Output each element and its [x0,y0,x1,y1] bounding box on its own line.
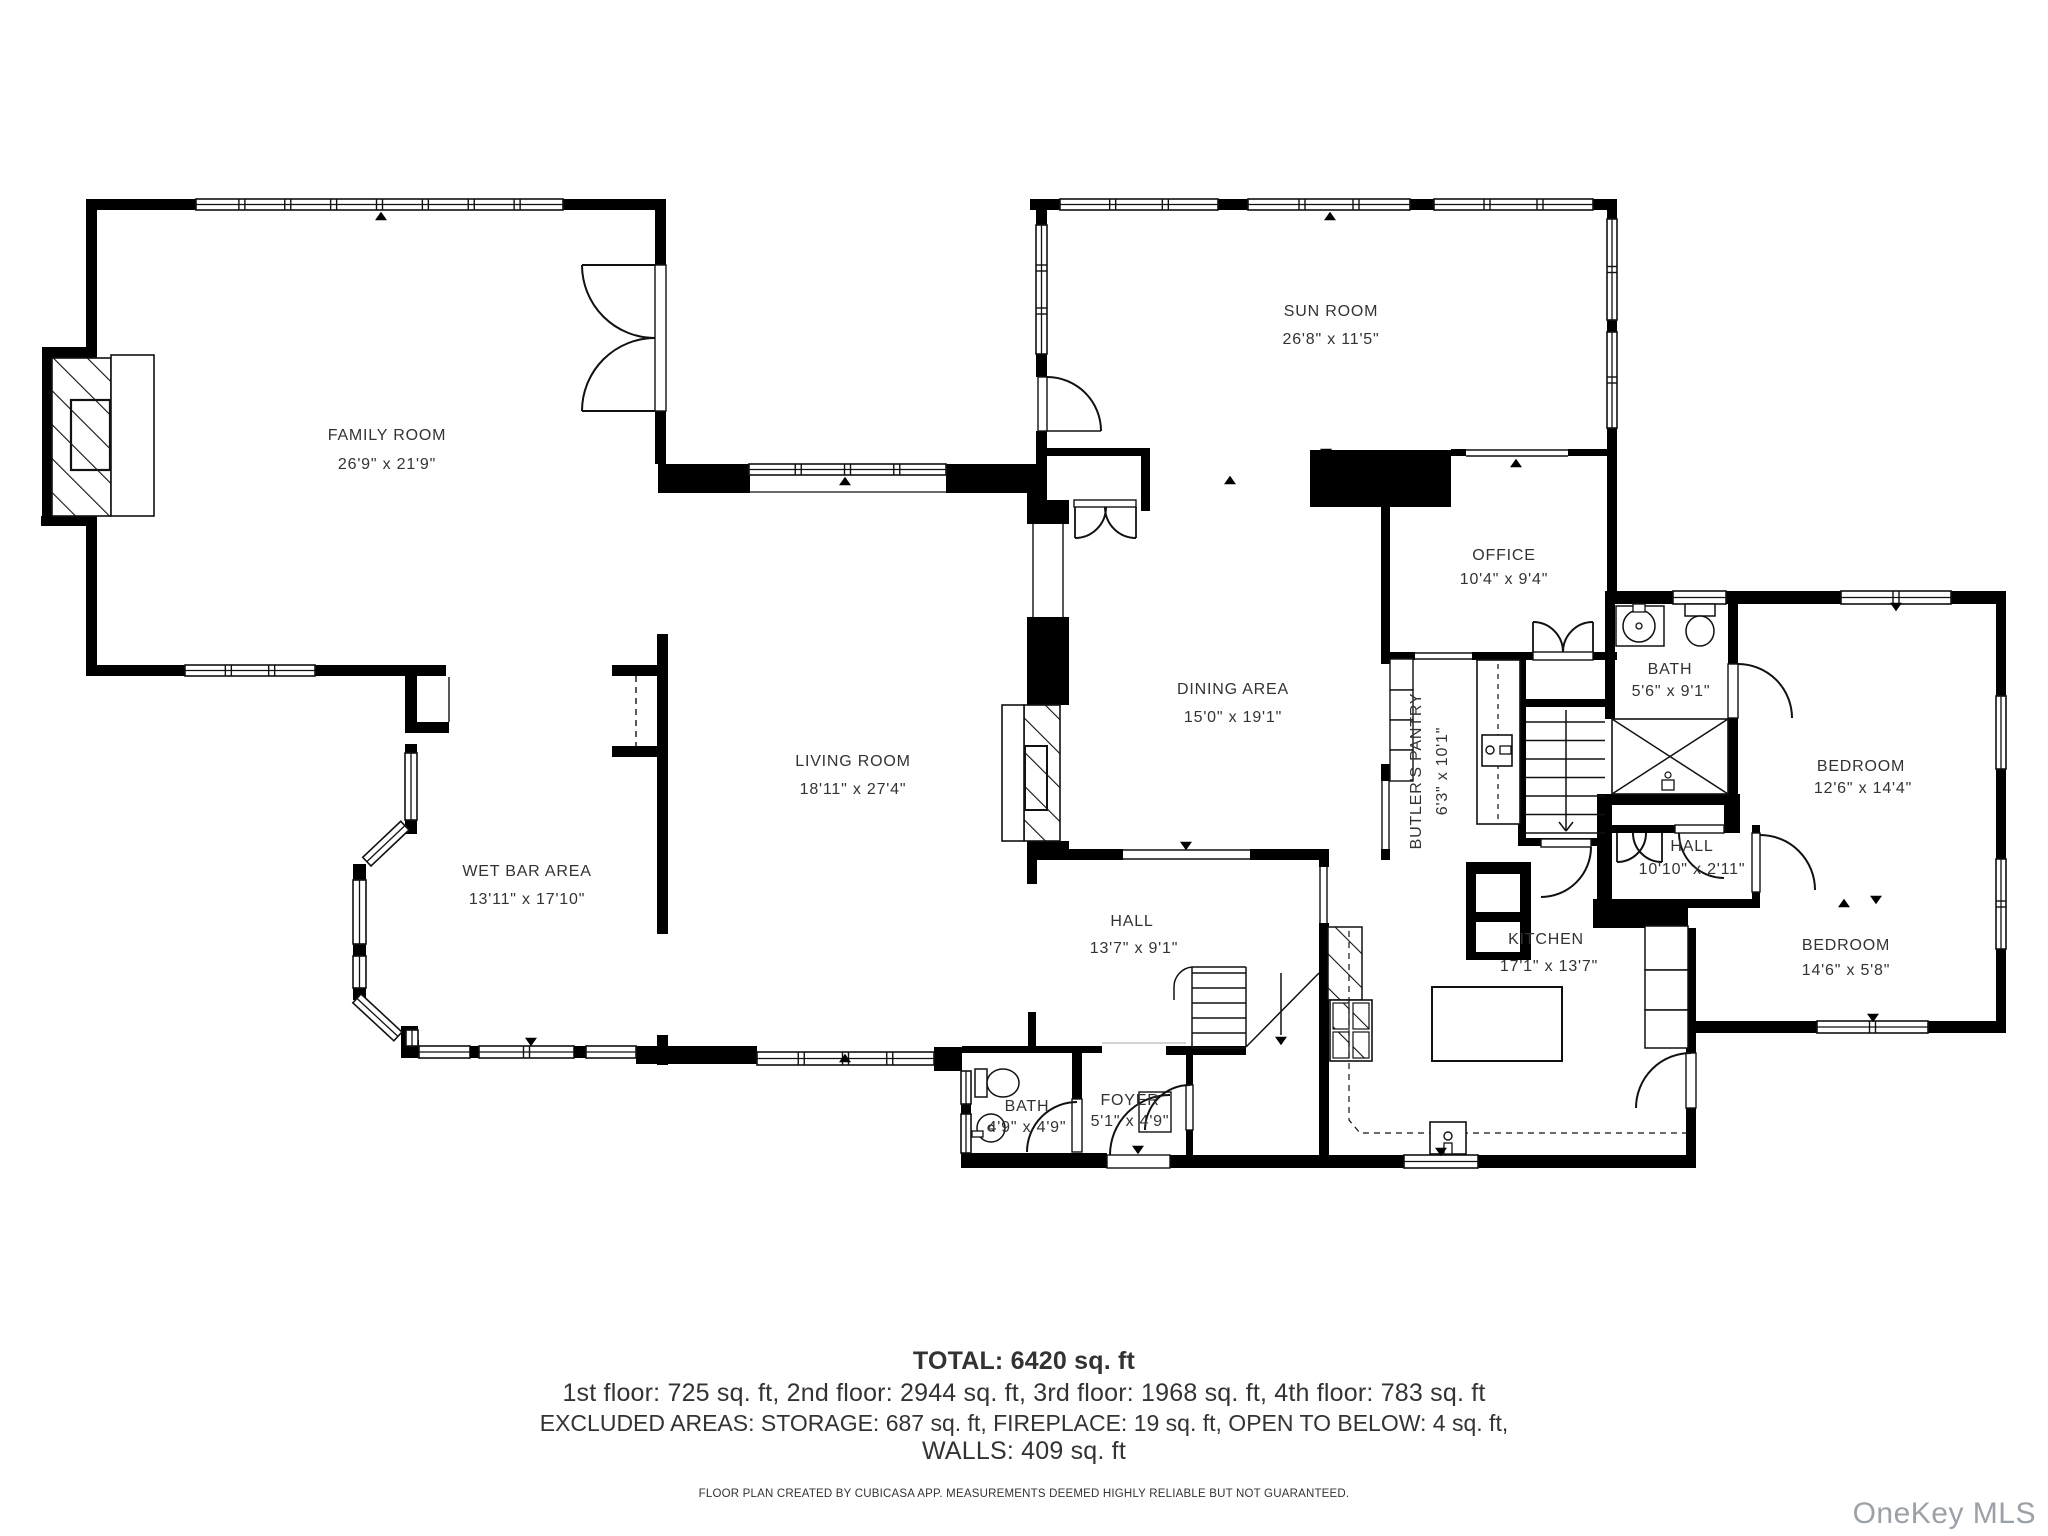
svg-text:EXCLUDED AREAS: STORAGE: 687 s: EXCLUDED AREAS: STORAGE: 687 sq. ft, FIR… [540,1410,1508,1436]
svg-text:BATH: BATH [1648,661,1693,678]
svg-text:KITCHEN: KITCHEN [1508,931,1584,948]
svg-text:6'3" x 10'1": 6'3" x 10'1" [1434,727,1451,815]
svg-text:SUN ROOM: SUN ROOM [1284,303,1378,320]
svg-text:13'11" x 17'10": 13'11" x 17'10" [469,891,585,908]
svg-text:5'6" x 9'1": 5'6" x 9'1" [1632,683,1711,700]
svg-text:BATH: BATH [1005,1098,1050,1115]
svg-text:18'11" x 27'4": 18'11" x 27'4" [800,781,907,798]
svg-text:15'0" x 19'1": 15'0" x 19'1" [1184,709,1282,726]
svg-text:FAMILY ROOM: FAMILY ROOM [328,427,446,444]
svg-text:13'7" x 9'1": 13'7" x 9'1" [1090,940,1178,957]
svg-text:14'6" x 5'8": 14'6" x 5'8" [1802,962,1890,979]
svg-text:26'8" x 11'5": 26'8" x 11'5" [1283,331,1380,348]
svg-text:DINING AREA: DINING AREA [1177,681,1289,698]
svg-text:5'1" x 4'9": 5'1" x 4'9" [1091,1113,1170,1130]
svg-text:1st floor: 725 sq. ft, 2nd flo: 1st floor: 725 sq. ft, 2nd floor: 2944 s… [562,1379,1485,1407]
svg-text:10'4" x 9'4": 10'4" x 9'4" [1460,571,1548,588]
svg-text:FOYER: FOYER [1100,1092,1159,1109]
svg-text:FLOOR PLAN CREATED BY CUBICASA: FLOOR PLAN CREATED BY CUBICASA APP. MEAS… [699,1488,1350,1500]
svg-text:BUTLER'S PANTRY: BUTLER'S PANTRY [1408,693,1425,850]
svg-text:10'10" x 2'11": 10'10" x 2'11" [1639,861,1746,878]
svg-text:BEDROOM: BEDROOM [1802,937,1890,954]
svg-text:OFFICE: OFFICE [1472,547,1535,564]
svg-text:TOTAL: 6420 sq. ft: TOTAL: 6420 sq. ft [913,1347,1136,1375]
svg-text:WALLS: 409 sq. ft: WALLS: 409 sq. ft [922,1437,1126,1465]
svg-text:OneKey MLS: OneKey MLS [1853,1497,2036,1530]
svg-text:BEDROOM: BEDROOM [1817,758,1905,775]
svg-text:17'1" x 13'7": 17'1" x 13'7" [1500,958,1598,975]
svg-text:26'9" x 21'9": 26'9" x 21'9" [338,456,436,473]
svg-text:LIVING ROOM: LIVING ROOM [795,753,910,770]
svg-text:HALL: HALL [1110,913,1153,930]
svg-text:HALL: HALL [1670,838,1713,855]
svg-text:12'6" x 14'4": 12'6" x 14'4" [1814,780,1912,797]
svg-text:WET BAR AREA: WET BAR AREA [462,863,591,880]
svg-text:4'9" x 4'9": 4'9" x 4'9" [988,1119,1067,1136]
